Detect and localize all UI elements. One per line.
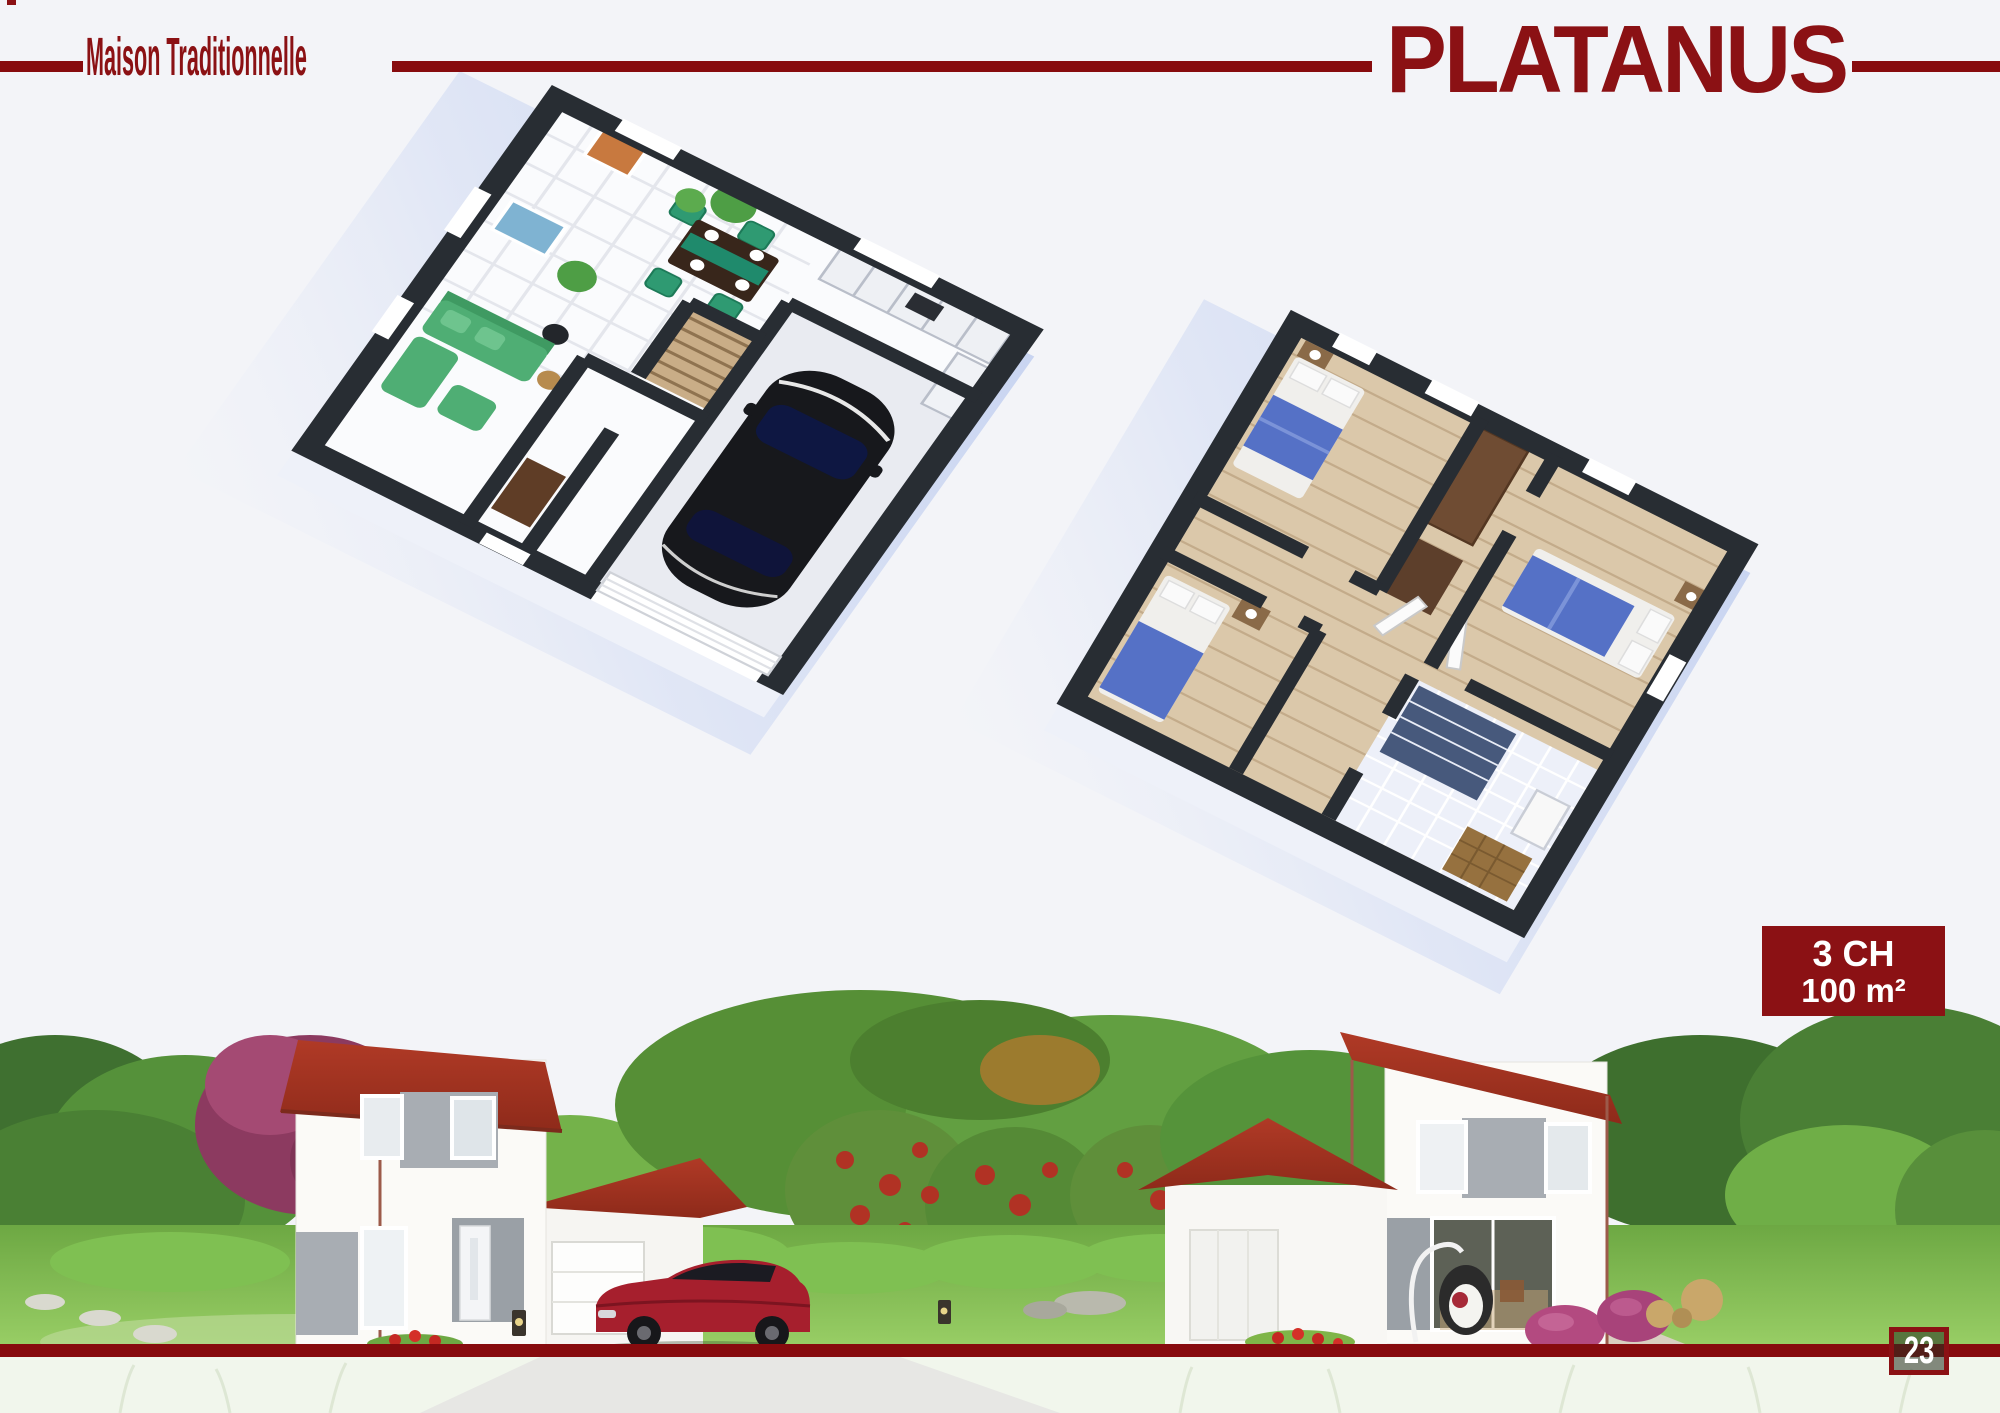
header-rule-right (1852, 61, 2000, 72)
spec-bedrooms: 3 CH (1812, 936, 1894, 972)
model-title: PLATANUS (1386, 12, 1846, 108)
artwork (0, 0, 2000, 1413)
rocks (1023, 1301, 1067, 1319)
ground-floor-plan (176, 46, 1052, 755)
upper-window (1546, 1124, 1590, 1192)
upper-window (362, 1096, 402, 1158)
door-glass (470, 1238, 478, 1300)
lower-window (362, 1228, 406, 1328)
upper-window (1418, 1122, 1466, 1192)
header-rule-left (0, 61, 83, 72)
page-number: 23 (1889, 1327, 1949, 1375)
footer-rule (0, 1344, 2000, 1357)
upper-window (452, 1098, 494, 1158)
stone-panel (1462, 1118, 1546, 1198)
faded-foreground (0, 1357, 2000, 1413)
upper-floor-plan (953, 272, 1766, 994)
garage-door (1190, 1230, 1278, 1340)
brochure-page: Maison Traditionnelle PLATANUS 3 CH 100 … (0, 0, 2000, 1413)
collection-title: Maison Traditionnelle (86, 30, 307, 84)
spec-badge: 3 CH 100 m² (1762, 926, 1945, 1016)
page-number-label: 23 (1904, 1332, 1934, 1370)
header-rule-middle (392, 61, 1372, 72)
spec-area: 100 m² (1801, 974, 1906, 1007)
headlight (598, 1310, 616, 1318)
corner-mark (7, 0, 16, 5)
interior-table (1500, 1280, 1524, 1302)
stone-corner (296, 1232, 358, 1335)
